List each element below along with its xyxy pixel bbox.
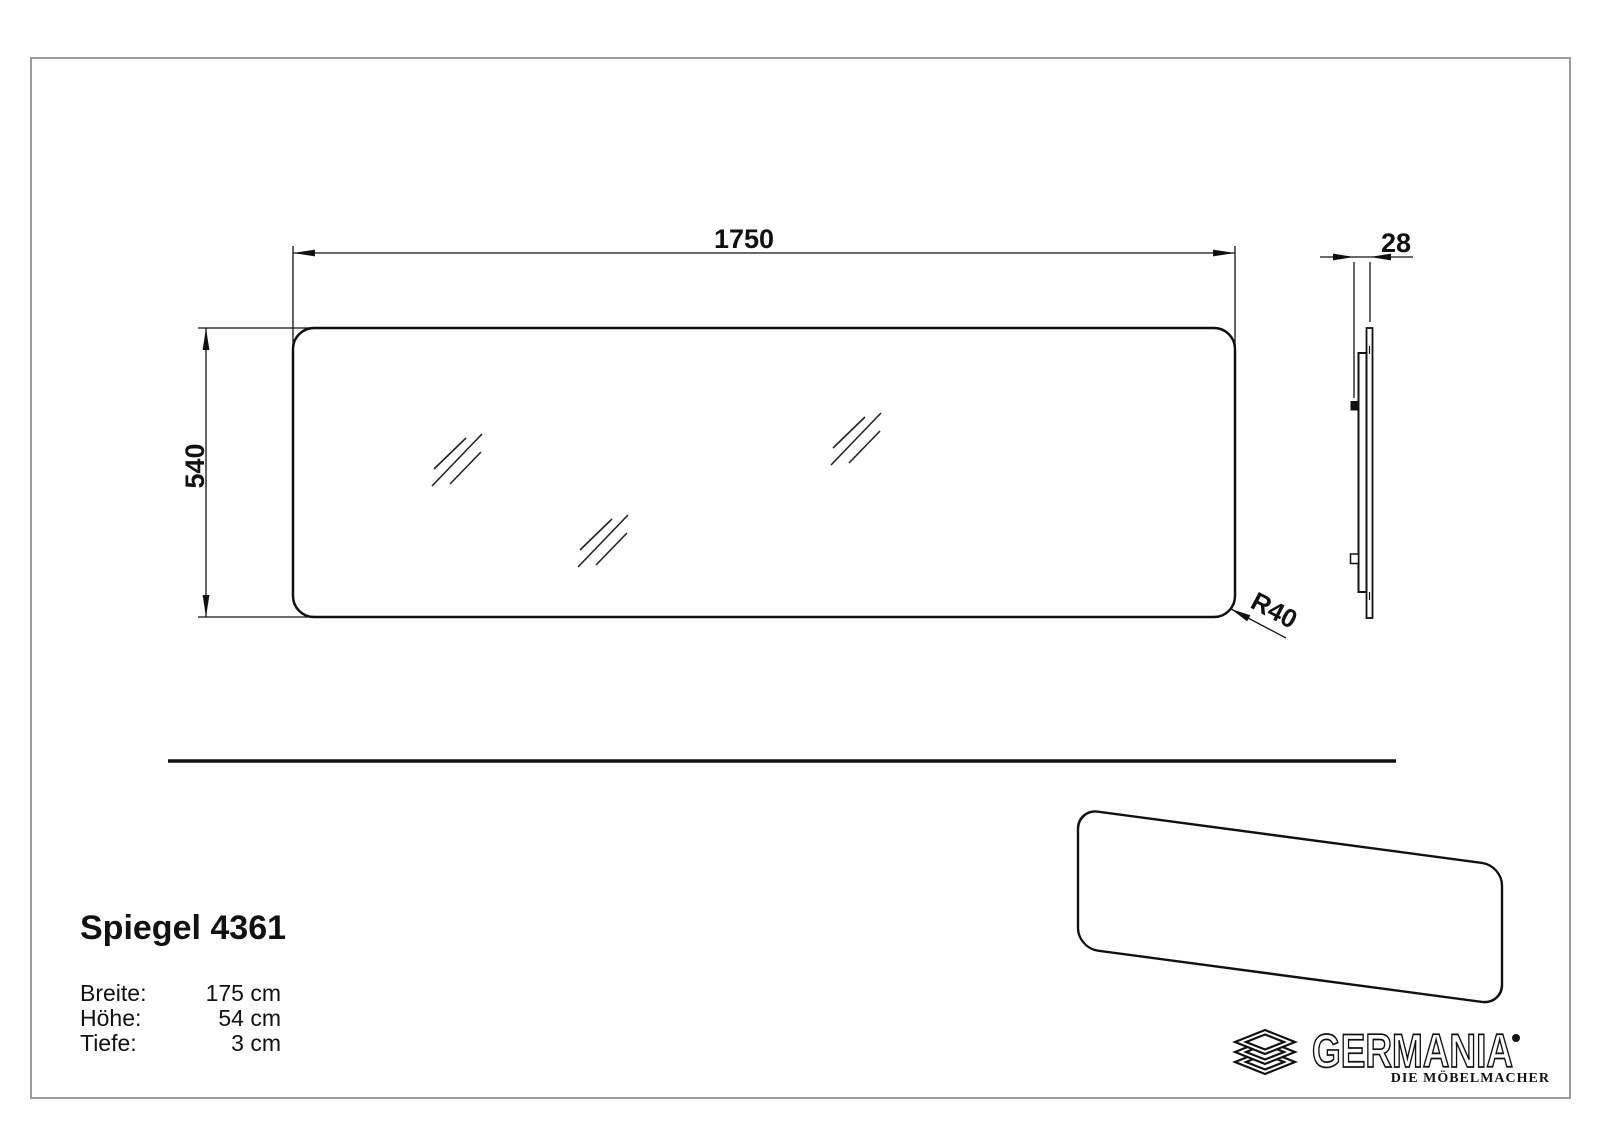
spec-value: 54 cm [193,1006,281,1031]
page: 1750 540 28 R40 [0,0,1600,1131]
lower-mount-block [1351,554,1359,564]
mirror-front-outline [293,328,1235,617]
spec-label: Breite: [80,981,193,1006]
depth-dimension-label: 28 [1381,228,1411,258]
front-view [293,328,1235,617]
wall-mount-block [1351,401,1359,411]
spec-row-hoehe: Höhe: 54 cm [80,1006,281,1031]
brand-tagline: DIE MÖBELMACHER [1391,1069,1550,1086]
mirror-perspective-outline [1078,809,1502,1005]
brand-dot [1512,1034,1520,1042]
spec-value: 3 cm [193,1031,281,1056]
perspective-view [1078,809,1502,1005]
spec-row-breite: Breite: 175 cm [80,981,281,1006]
spec-row-tiefe: Tiefe: 3 cm [80,1031,281,1056]
product-specs: Breite: 175 cm Höhe: 54 cm Tiefe: 3 cm [80,981,281,1056]
brand-wordmark: GERMANIA [1312,1024,1513,1077]
back-panel-side-outline [1359,353,1367,592]
spec-label: Tiefe: [80,1031,193,1056]
product-title: Spiegel 4361 [80,909,286,948]
layers-icon [1235,1030,1295,1074]
technical-drawing: 1750 540 28 R40 [0,0,1600,1131]
spec-label: Höhe: [80,1006,193,1031]
corner-radius-label: R40 [1246,586,1302,635]
height-dimension-label: 540 [180,443,210,488]
germania-logo: GERMANIA DIE MÖBELMACHER [1235,1024,1550,1086]
spec-value: 175 cm [193,981,281,1006]
width-dimension-label: 1750 [714,224,774,254]
